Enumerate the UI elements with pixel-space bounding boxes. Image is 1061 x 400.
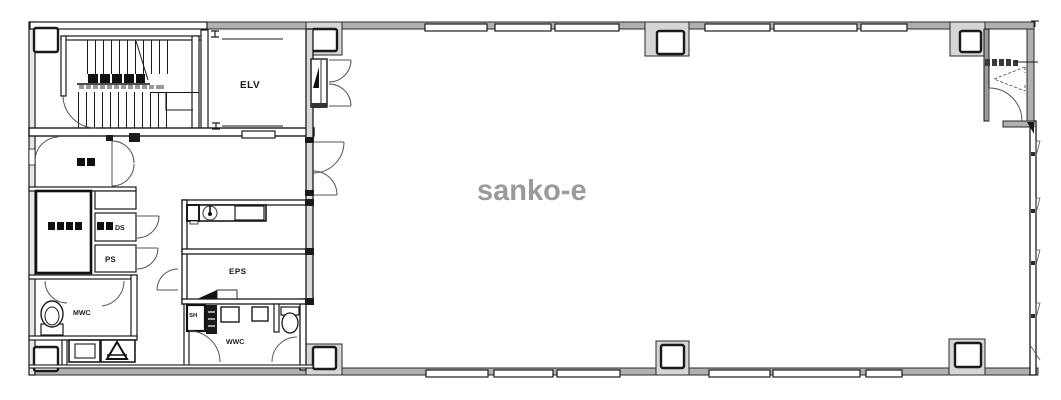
svg-text:SH: SH [189,312,197,319]
svg-text:EPS: EPS [229,267,247,276]
svg-text:sanko-e: sanko-e [477,175,587,207]
svg-text:DS: DS [115,225,125,232]
svg-text:ELV: ELV [240,80,260,91]
svg-text:WWC: WWC [226,339,244,346]
svg-text:PS: PS [105,255,116,264]
svg-text:MWC: MWC [73,310,91,317]
